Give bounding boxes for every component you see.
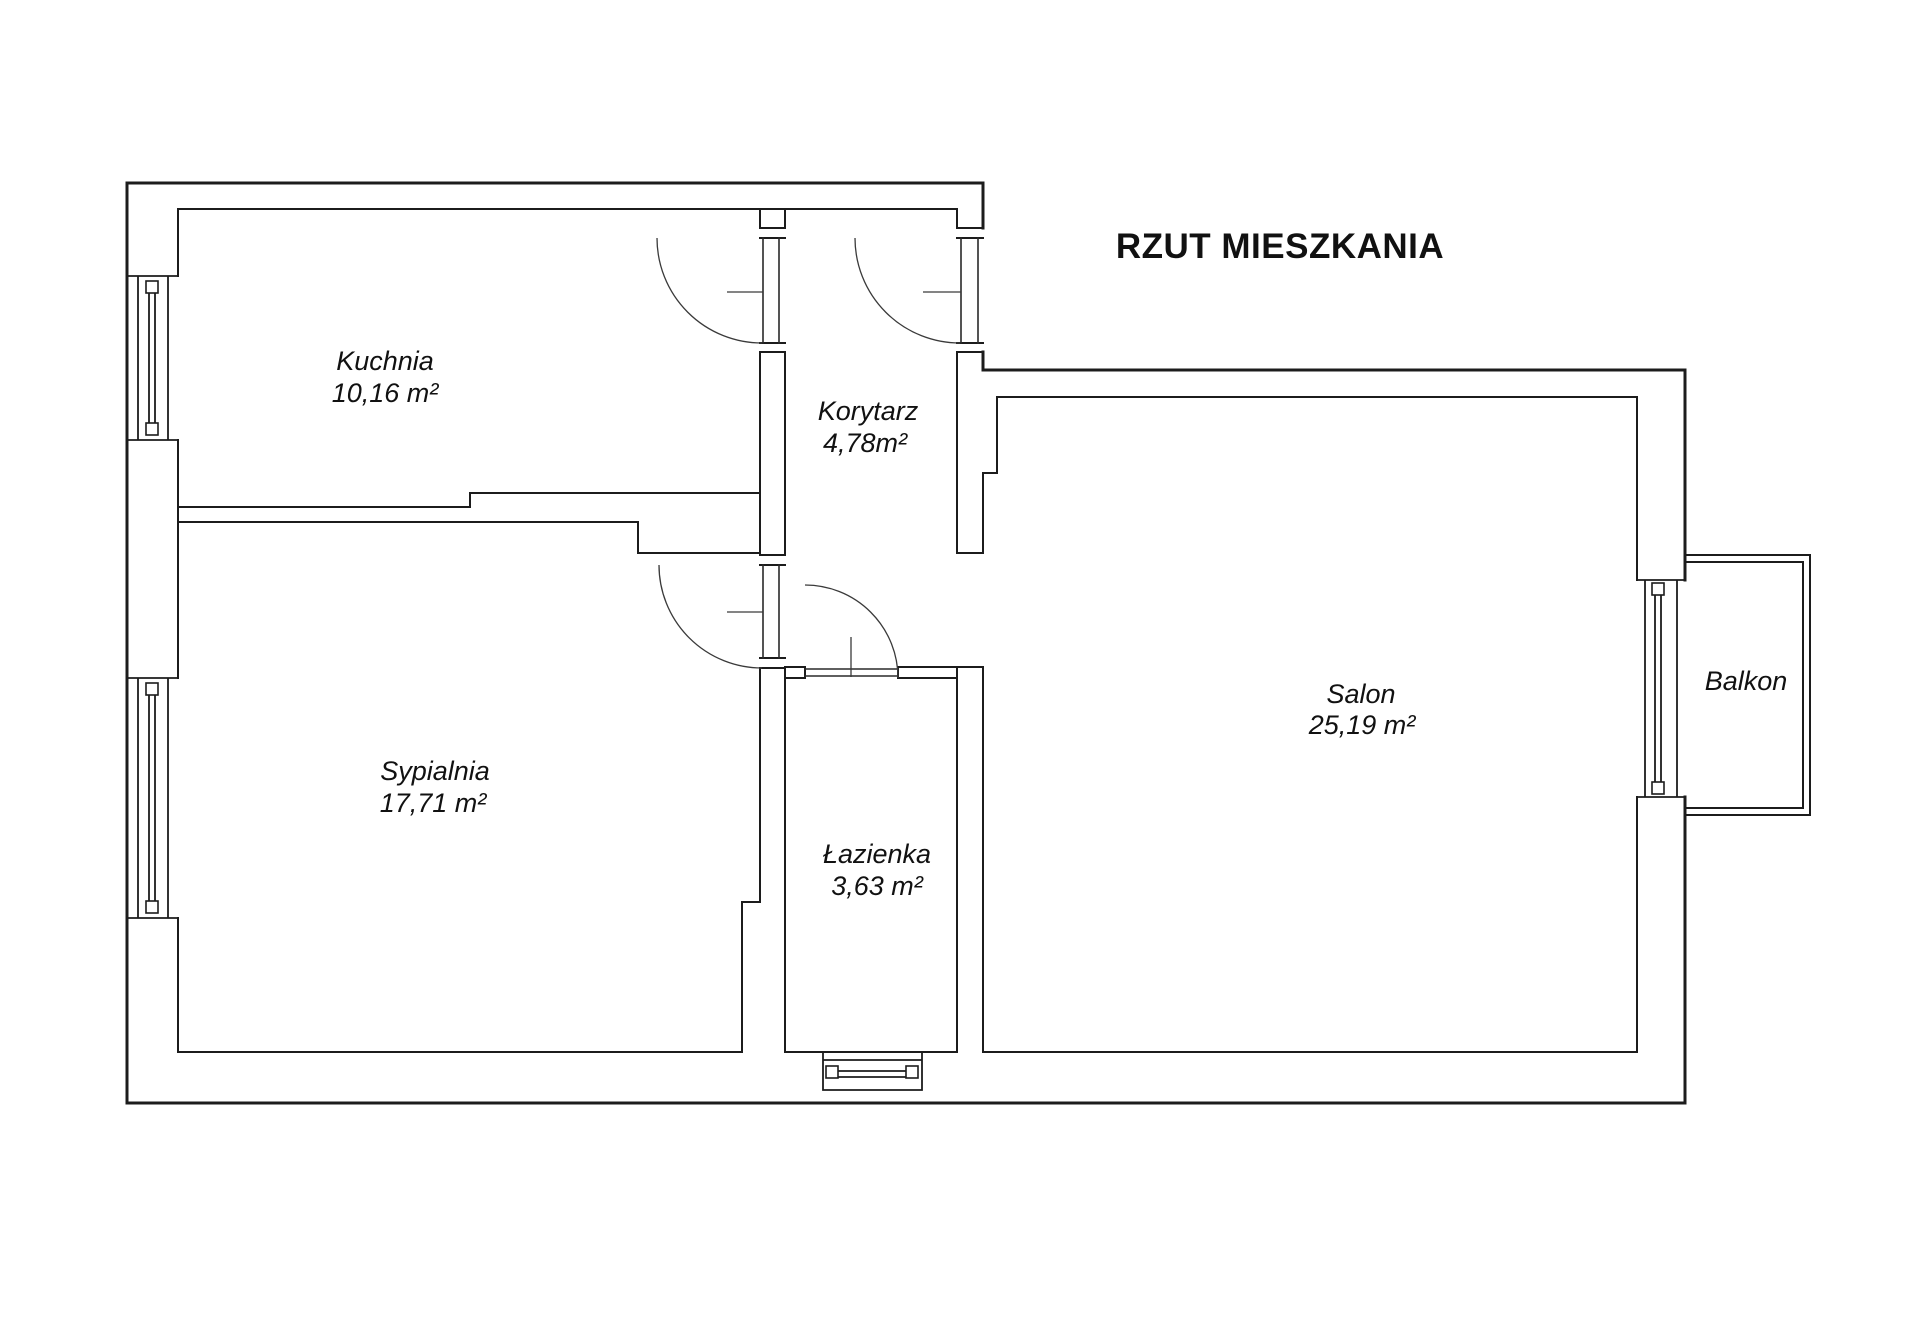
bathroom-vent-window-cap-right — [906, 1066, 918, 1078]
kitchen-door — [657, 238, 779, 343]
room-label-balkon: Balkon — [1705, 666, 1788, 696]
doors — [657, 238, 978, 678]
room-area-salon: 25,19 m² — [1308, 710, 1417, 740]
bedroom-window-cap-top — [146, 683, 158, 695]
bedroom-window-frame — [127, 678, 178, 918]
bathroom-door — [805, 585, 898, 678]
room-label-sypialnia: Sypialnia 17,71 m² — [380, 756, 490, 818]
inner-walls — [178, 209, 1637, 1052]
room-area-lazienka: 3,63 m² — [831, 871, 924, 901]
bedroom-window-cap-bottom — [146, 901, 158, 913]
kitchen-door-frame — [763, 238, 779, 343]
room-name-kuchnia: Kuchnia — [336, 346, 434, 376]
kitchen-window — [127, 276, 178, 440]
balcony-window-cap-top — [1652, 583, 1664, 595]
room-name-sypialnia: Sypialnia — [380, 756, 490, 786]
walls — [127, 183, 1685, 1103]
kitchen-window-cap-top — [146, 281, 158, 293]
bedroom-door — [659, 565, 779, 668]
room-area-korytarz: 4,78m² — [823, 428, 908, 458]
room-area-kuchnia: 10,16 m² — [332, 378, 440, 408]
outer-walls — [127, 183, 1685, 1103]
room-label-lazienka: Łazienka 3,63 m² — [823, 839, 931, 901]
balcony-window-frame — [1637, 580, 1685, 797]
floor-plan-page: RZUT MIESZKANIA Kuchnia 10,16 m² Korytar… — [0, 0, 1920, 1341]
bathroom-vent-window — [823, 1052, 922, 1090]
room-name-balkon: Balkon — [1705, 666, 1788, 696]
bathroom-vent-window-cap-left — [826, 1066, 838, 1078]
kitchen-window-cap-bottom — [146, 423, 158, 435]
kitchen-window-frame — [127, 276, 178, 440]
bedroom-door-arc — [659, 565, 762, 668]
room-name-korytarz: Korytarz — [818, 396, 919, 426]
room-label-salon: Salon 25,19 m² — [1308, 679, 1417, 740]
bedroom-door-frame — [763, 565, 779, 658]
bedroom-window — [127, 678, 178, 918]
room-label-kuchnia: Kuchnia 10,16 m² — [332, 346, 440, 408]
room-name-lazienka: Łazienka — [823, 839, 931, 869]
balcony-window — [1637, 580, 1685, 797]
plan-title: RZUT MIESZKANIA — [1116, 227, 1444, 266]
entrance-door — [855, 238, 978, 343]
entrance-door-frame — [961, 238, 978, 343]
kitchen-door-arc — [657, 238, 762, 343]
room-label-korytarz: Korytarz 4,78m² — [818, 396, 919, 458]
room-area-sypialnia: 17,71 m² — [380, 788, 488, 818]
floor-plan-canvas: RZUT MIESZKANIA Kuchnia 10,16 m² Korytar… — [0, 0, 1920, 1341]
balcony-window-cap-bottom — [1652, 782, 1664, 794]
room-name-salon: Salon — [1326, 679, 1395, 709]
entrance-door-arc — [855, 238, 960, 343]
